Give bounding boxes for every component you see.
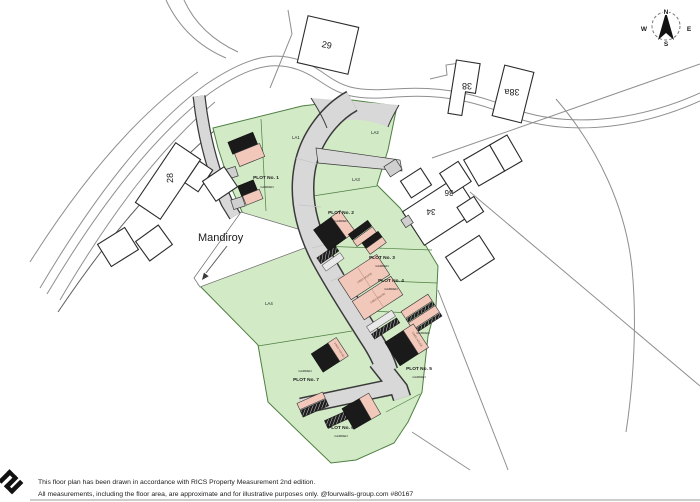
house-number-28: 28 bbox=[165, 173, 175, 183]
site-plan-drawing: 3 BED HOUSE 3 BED HOUSE 3 BED HOUSE 3 BE… bbox=[0, 0, 700, 502]
disclaimer-line-1: This floor plan has been drawn in accord… bbox=[38, 479, 315, 486]
landscape-area-2: LA2 bbox=[371, 130, 379, 135]
plot-4-garden: GARDEN bbox=[384, 287, 397, 291]
plot-5-garden: GARDEN bbox=[412, 375, 425, 379]
plot-2-garden: GARDEN bbox=[334, 219, 347, 223]
compass-south: S bbox=[664, 41, 669, 48]
outbuildings-pair bbox=[464, 135, 522, 186]
fourwalls-logo-icon bbox=[0, 469, 23, 494]
plot-3-label: PLOT No. 3 bbox=[369, 255, 395, 261]
plot-5-label: PLOT No. 5 bbox=[406, 366, 432, 372]
house-28 bbox=[135, 143, 213, 228]
compass-east: E bbox=[687, 26, 692, 33]
north-arrow-icon bbox=[658, 12, 674, 40]
site-plan-page: 3 BED HOUSE 3 BED HOUSE 3 BED HOUSE 3 BE… bbox=[0, 0, 700, 502]
outbuilding bbox=[446, 235, 495, 280]
plot-7-garden: GARDEN bbox=[298, 369, 311, 373]
landscape-area-4: LA4 bbox=[265, 301, 273, 306]
plot-1-garden: GARDEN bbox=[260, 185, 273, 189]
plot-1-label: PLOT No. 1 bbox=[253, 175, 279, 181]
outbuilding bbox=[400, 168, 431, 198]
landscape-area-3: LA3 bbox=[352, 177, 360, 182]
house-number-29: 29 bbox=[321, 39, 333, 51]
footer: This floor plan has been drawn in accord… bbox=[0, 469, 700, 500]
compass-rose: N S W E bbox=[641, 9, 692, 48]
house-number-34: 34 bbox=[426, 207, 435, 216]
outbuilding bbox=[136, 225, 173, 261]
plot-6-label: PLOT No. 6 bbox=[328, 425, 354, 431]
house-number-38a: 38a bbox=[504, 87, 519, 97]
house-number-36: 36 bbox=[444, 188, 453, 197]
compass-west: W bbox=[641, 26, 648, 33]
compass-north: N bbox=[664, 9, 669, 16]
street-name: Mandiroy bbox=[198, 232, 244, 244]
plot-6-garden: GARDEN bbox=[334, 434, 347, 438]
plot-4-label: PLOT No. 4 bbox=[378, 278, 404, 284]
outbuilding bbox=[98, 227, 139, 266]
extra-garden-label: GARDEN bbox=[416, 331, 429, 335]
plot-7-label: PLOT No. 7 bbox=[293, 377, 319, 383]
plot-3-garden: GARDEN bbox=[375, 264, 388, 268]
plot-2-label: PLOT No. 2 bbox=[328, 210, 354, 216]
landscape-area-1: LA1 bbox=[292, 135, 300, 140]
house-number-38: 38 bbox=[462, 81, 472, 91]
disclaimer-line-2: All measurements, including the floor ar… bbox=[38, 491, 413, 498]
